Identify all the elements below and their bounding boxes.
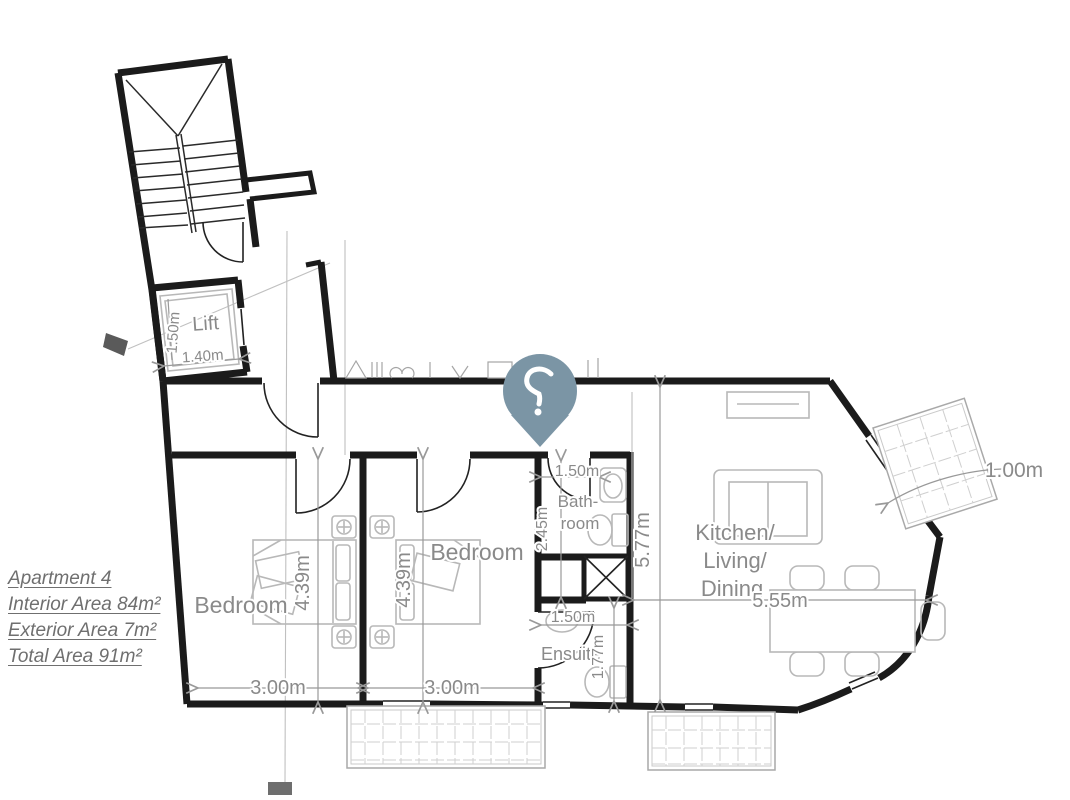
ensuite-depth-dim: 1.77m: [590, 635, 607, 679]
balcony-width-dim: 1.00m: [985, 459, 1043, 482]
bedroom2-door: [417, 459, 470, 512]
kitchen-label-2: Living/: [703, 548, 767, 573]
kitchen-depth-dim: 5.77m: [632, 512, 654, 568]
apartment-title: Apartment 4: [8, 566, 160, 592]
floorplan-drawing: Lift 1.50m 1.40m: [0, 0, 1070, 800]
bedroom2-furniture: [370, 516, 480, 648]
bathroom-label-2: room: [561, 514, 600, 533]
lift-label: Lift: [192, 312, 221, 336]
location-pin[interactable]: [503, 354, 577, 447]
entrance-door: [264, 383, 318, 437]
bedroom1-label: Bedroom: [194, 592, 287, 618]
bathroom-width-dim: 1.50m: [555, 463, 599, 480]
balcony-right: [873, 398, 997, 528]
duct-shaft: [584, 556, 628, 599]
lift-width-dim: 1.40m: [181, 347, 224, 367]
bedroom2-depth-dim: 4.39m: [393, 552, 415, 608]
balcony-bottom-left: [347, 706, 545, 768]
floorplan-canvas: Lift 1.50m 1.40m: [0, 0, 1070, 800]
ensuite-width-dim: 1.50m: [551, 609, 595, 626]
stair-door: [203, 222, 243, 262]
lift-room: Lift 1.50m 1.40m: [152, 280, 247, 381]
balcony-bottom-right: [648, 712, 775, 770]
apartment-info-block: Apartment 4 Interior Area 84m² Exterior …: [8, 566, 160, 670]
reference-lines: [103, 231, 345, 795]
bathroom-label-1: Bath-: [558, 492, 599, 511]
exterior-area: Exterior Area 7m²: [8, 618, 160, 644]
bedroom1-door: [296, 459, 350, 513]
lift-depth-dim: 1.50m: [164, 311, 184, 354]
bathroom-depth-dim: 2.45m: [534, 507, 551, 551]
kitchen-width-dim: 5.55m: [752, 590, 808, 612]
bedroom2-label: Bedroom: [430, 539, 523, 565]
sliding-doors: [383, 435, 907, 710]
pin-glyph-dot: [535, 409, 542, 416]
kitchen-label-1: Kitchen/: [695, 520, 775, 545]
survey-flag-marker: [103, 333, 128, 356]
total-area: Total Area 91m²: [8, 644, 160, 670]
interior-area: Interior Area 84m²: [8, 592, 160, 618]
bedroom1-width-dim: 3.00m: [250, 677, 306, 699]
bedroom1-depth-dim: 4.39m: [292, 555, 314, 611]
bedroom2-width-dim: 3.00m: [424, 677, 480, 699]
survey-end-marker: [268, 782, 292, 795]
